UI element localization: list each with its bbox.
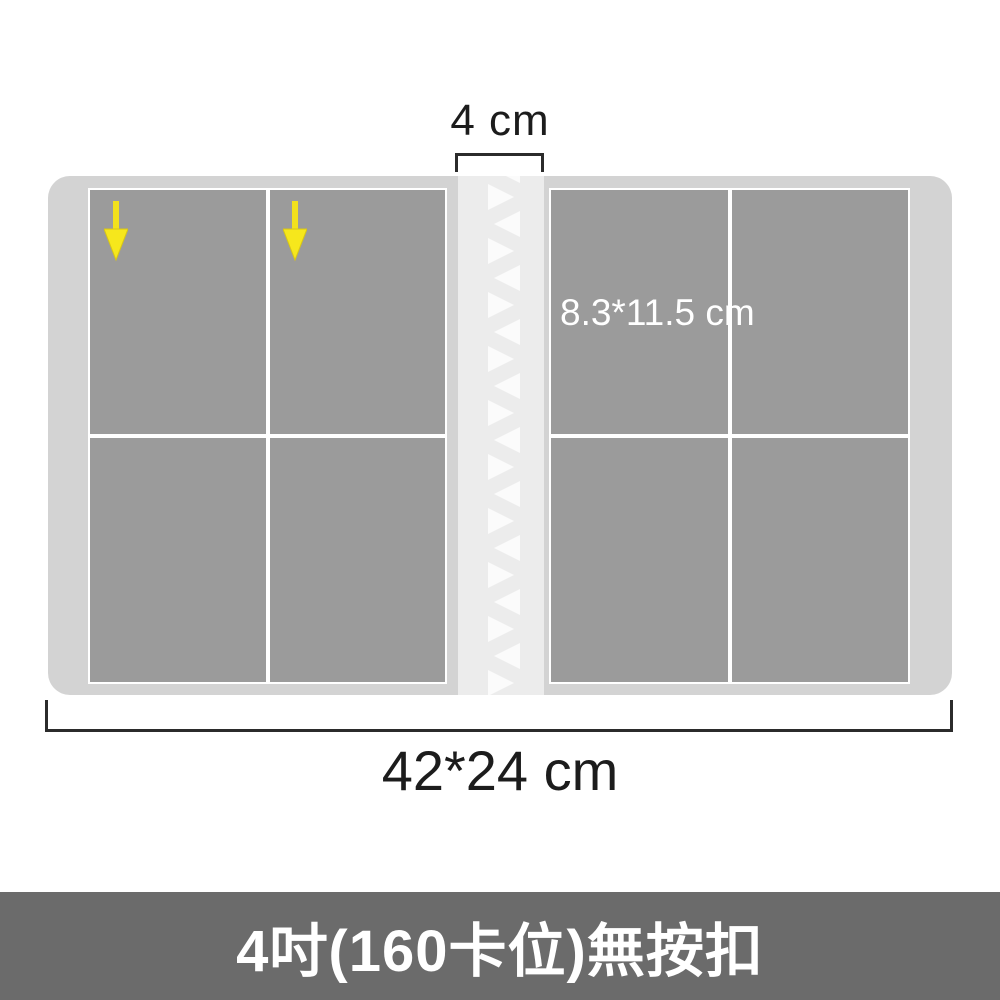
card-slot xyxy=(551,438,728,682)
album-cover: 8.3*11.5 cm xyxy=(48,176,952,695)
product-diagram: 4 cm xyxy=(0,0,1000,1000)
spine xyxy=(458,176,544,695)
pocket-size-label: 8.3*11.5 cm xyxy=(560,292,755,334)
down-arrow-icon xyxy=(283,198,307,262)
card-slot xyxy=(732,190,909,434)
spine-width-label: 4 cm xyxy=(400,96,600,146)
right-page xyxy=(549,188,910,684)
spine-width-bracket xyxy=(455,153,544,172)
album-size-label: 42*24 cm xyxy=(0,738,1000,803)
product-title: 4吋(160卡位)無按扣 xyxy=(236,904,764,988)
album-width-bracket xyxy=(45,700,953,732)
left-page xyxy=(88,188,447,684)
card-slot xyxy=(90,438,266,682)
zigzag-pattern xyxy=(458,176,544,695)
card-slot xyxy=(270,438,446,682)
card-slot xyxy=(732,438,909,682)
product-title-banner: 4吋(160卡位)無按扣 xyxy=(0,892,1000,1000)
down-arrow-icon xyxy=(104,198,128,262)
